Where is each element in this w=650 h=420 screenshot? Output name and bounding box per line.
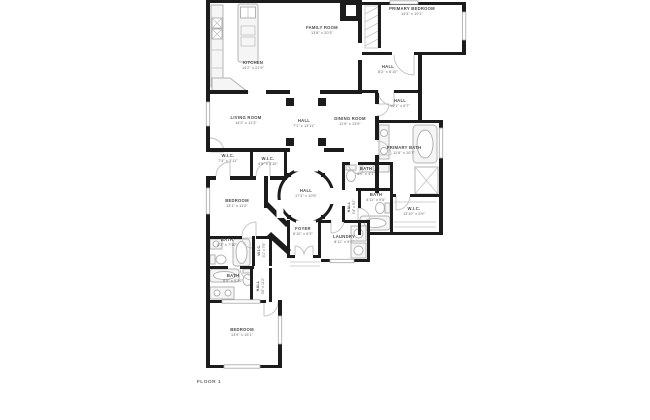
window-icon — [206, 188, 209, 214]
room-label-foyer: FOYER — [295, 226, 311, 231]
room-dims-wic-vert: 3'1" x 7'6" — [262, 242, 266, 258]
kitchen-island — [238, 4, 258, 62]
room-label-bedroom-bottom: BEDROOM — [230, 327, 254, 332]
room-dims-hall-vert-left: 3'6" x 11'2" — [261, 277, 265, 294]
room-label-bath-3: BATH — [221, 237, 233, 242]
room-dims-wic-1: 7'4" x 3'11" — [218, 159, 238, 163]
room-dims-bedroom-mid: 13'1" x 11'0" — [226, 204, 248, 208]
room-label-wic-vert: W.I.C. — [257, 244, 261, 255]
room-label-family-room: FAMILY ROOM — [306, 25, 338, 30]
room-label-bath-2: BATH — [370, 192, 382, 197]
room-dims-hall-vert-right: 3'4" x 9'2" — [352, 199, 356, 215]
room-dims-hall-center: 7'1" x 13'11" — [293, 124, 315, 128]
window-icon — [206, 102, 209, 126]
room-dims-powder-bath: 8'9" x 4'1" — [357, 172, 375, 176]
window-icon — [439, 128, 442, 158]
room-label-primary-bedroom: PRIMARY BEDROOM — [389, 6, 435, 11]
floor-plan-canvas: KITCHEN 14'2" x 21'9" FAMILY ROOM 13'8" … — [0, 0, 650, 420]
room-dims-hall-upper: 8'2" x 6'10" — [378, 70, 398, 74]
room-dims-bath-2: 4'11" x 9'6" — [366, 198, 386, 202]
porch-steps — [290, 262, 320, 266]
room-label-kitchen: KITCHEN — [243, 60, 263, 65]
room-label-hall-upper2: HALL — [394, 98, 406, 103]
room-label-bath-4: BATH — [227, 273, 239, 278]
room-dims-wic-wide: 13'10" x 5'9" — [403, 212, 426, 216]
room-label-wic-wide: W.I.C. — [408, 206, 421, 211]
primary-bath-fixtures — [379, 125, 438, 194]
room-dims-bedroom-bottom: 13'9" x 15'1" — [231, 333, 254, 337]
room-label-living-room: LIVING ROOM — [231, 115, 262, 120]
room-dims-laundry: 8'11" x 9'0" — [334, 240, 354, 244]
floor-plan-page: KITCHEN 14'2" x 21'9" FAMILY ROOM 13'8" … — [0, 0, 650, 420]
window-icon — [462, 12, 465, 40]
room-label-dining-room: DINING ROOM — [334, 116, 366, 121]
room-dims-dining-room: 11'9" x 13'9" — [339, 122, 361, 126]
window-icon — [330, 259, 354, 262]
room-dims-wic-2: 4'5" x 4'10" — [258, 162, 278, 166]
toilet-icon — [210, 255, 215, 264]
room-dims-foyer: 6'10" x 6'3" — [293, 232, 313, 236]
room-label-wic-1: W.I.C. — [222, 153, 235, 158]
window-icon — [390, 1, 418, 4]
window-icon — [278, 316, 281, 344]
room-dims-bath-4: 8'5" x 5'10" — [223, 279, 243, 283]
room-label-hall-center: HALL — [298, 118, 310, 123]
room-label-hall-vert-left: HALL — [256, 280, 260, 291]
closet-hatch — [365, 6, 378, 48]
room-dims-primary-bath: 11'6" x 10'7" — [393, 151, 415, 155]
room-label-rotunda-hall: HALL — [300, 188, 312, 193]
door-arcs — [210, 55, 414, 316]
room-dims-rotunda-hall: 17'3" x 10'5" — [295, 194, 318, 198]
room-label-powder-bath: BATH — [360, 166, 372, 171]
room-label-hall-vert-right: HALL — [347, 201, 351, 212]
room-label-hall-upper: HALL — [382, 64, 394, 69]
room-dims-family-room: 13'8" x 20'3" — [311, 31, 334, 35]
window-icon — [222, 300, 260, 303]
room-label-primary-bath: PRIMARY BATH — [387, 145, 422, 150]
room-label-wic-2: W.I.C. — [262, 156, 275, 161]
room-dims-kitchen: 14'2" x 21'9" — [242, 66, 265, 70]
room-dims-living-room: 14'2" x 11'3" — [235, 121, 257, 125]
window-icon — [224, 365, 260, 368]
room-dims-hall-upper2: 10'1" x 6'7" — [390, 104, 410, 108]
floor-level-title: FLOOR 1 — [197, 379, 221, 385]
room-label-laundry: LAUNDRY — [333, 234, 355, 239]
room-label-bedroom-mid: BEDROOM — [225, 198, 249, 203]
toilet-icon — [346, 165, 356, 170]
room-dims-bath-3: 8'3" x 7'10" — [217, 243, 237, 247]
room-dims-primary-bedroom: 14'3" x 19'1" — [401, 12, 424, 16]
toilet-icon — [385, 203, 390, 213]
